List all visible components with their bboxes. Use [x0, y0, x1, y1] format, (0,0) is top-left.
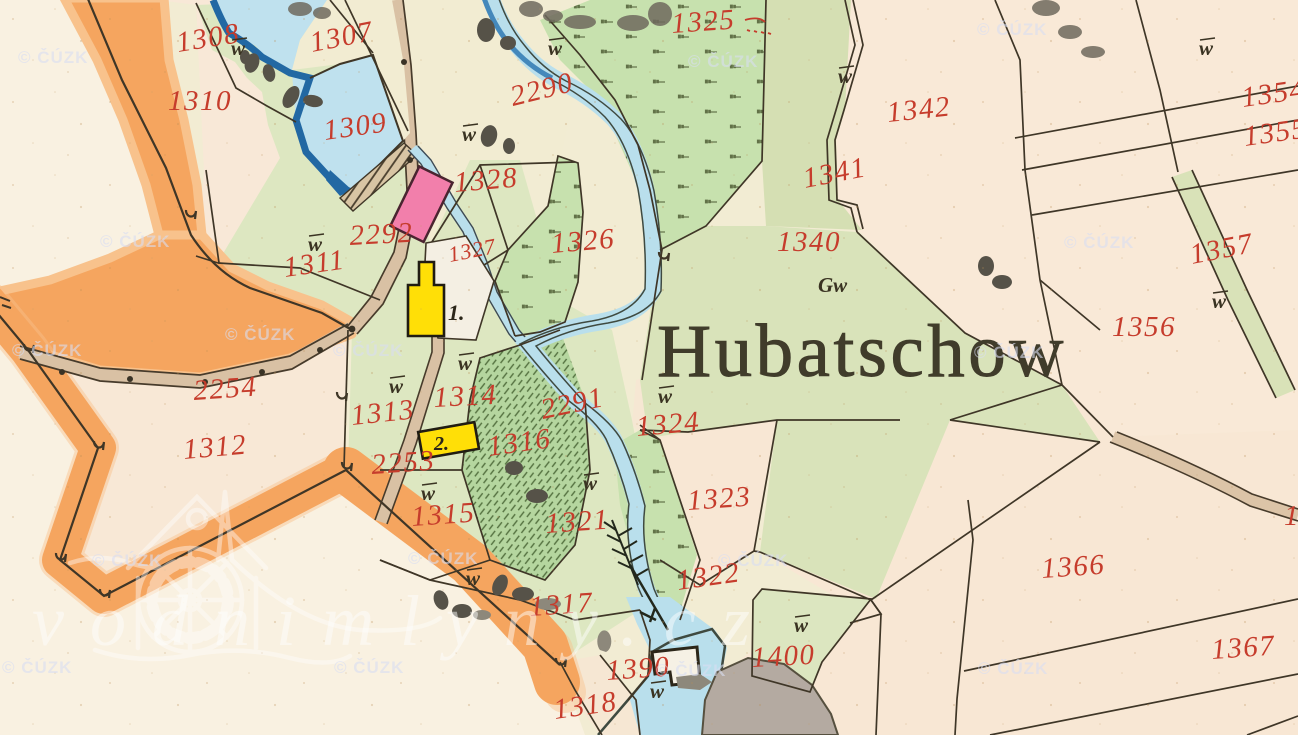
svg-text:© ČÚZK: © ČÚZK: [92, 551, 162, 570]
svg-text:© ČÚZK: © ČÚZK: [978, 659, 1048, 678]
svg-text:© ČÚZK: © ČÚZK: [333, 341, 403, 360]
svg-text:1366: 1366: [1040, 549, 1106, 585]
svg-text:1310: 1310: [168, 85, 232, 117]
svg-text:1321: 1321: [544, 504, 610, 540]
svg-text:1342: 1342: [885, 90, 952, 129]
svg-text:1328: 1328: [453, 162, 520, 199]
svg-text:2292: 2292: [349, 217, 415, 252]
svg-text:1326: 1326: [550, 223, 617, 260]
svg-text:© ČÚZK: © ČÚZK: [718, 551, 788, 570]
svg-text:1325: 1325: [670, 4, 736, 40]
svg-text:1: 1: [1284, 500, 1298, 532]
svg-text:© ČÚZK: © ČÚZK: [688, 52, 758, 71]
svg-text:© ČÚZK: © ČÚZK: [974, 343, 1044, 362]
svg-text:© ČÚZK: © ČÚZK: [225, 325, 295, 344]
svg-text:© ČÚZK: © ČÚZK: [656, 661, 726, 680]
svg-text:© ČÚZK: © ČÚZK: [18, 48, 88, 67]
svg-text:© ČÚZK: © ČÚZK: [100, 232, 170, 251]
svg-text:1340: 1340: [777, 226, 841, 258]
svg-text:2253: 2253: [370, 445, 436, 481]
svg-text:1367: 1367: [1210, 630, 1276, 666]
svg-text:© ČÚZK: © ČÚZK: [1064, 233, 1134, 252]
svg-text:2254: 2254: [192, 371, 258, 407]
svg-text:1356: 1356: [1112, 311, 1176, 343]
svg-text:1.: 1.: [448, 300, 465, 325]
svg-text:© ČÚZK: © ČÚZK: [334, 658, 404, 677]
svg-text:1324: 1324: [635, 406, 702, 443]
svg-text:2.: 2.: [433, 433, 449, 455]
svg-text:1323: 1323: [686, 481, 752, 517]
svg-text:1314: 1314: [433, 379, 499, 414]
svg-text:© ČÚZK: © ČÚZK: [977, 20, 1047, 39]
svg-text:© ČÚZK: © ČÚZK: [408, 549, 478, 568]
svg-text:Gw: Gw: [818, 273, 848, 297]
svg-text:© ČÚZK: © ČÚZK: [2, 658, 72, 677]
svg-text:© ČÚZK: © ČÚZK: [12, 341, 82, 360]
svg-text:1313: 1313: [349, 393, 416, 432]
svg-text:1312: 1312: [182, 429, 249, 466]
svg-text:vodnimlyny.cz: vodnimlyny.cz: [32, 581, 776, 661]
